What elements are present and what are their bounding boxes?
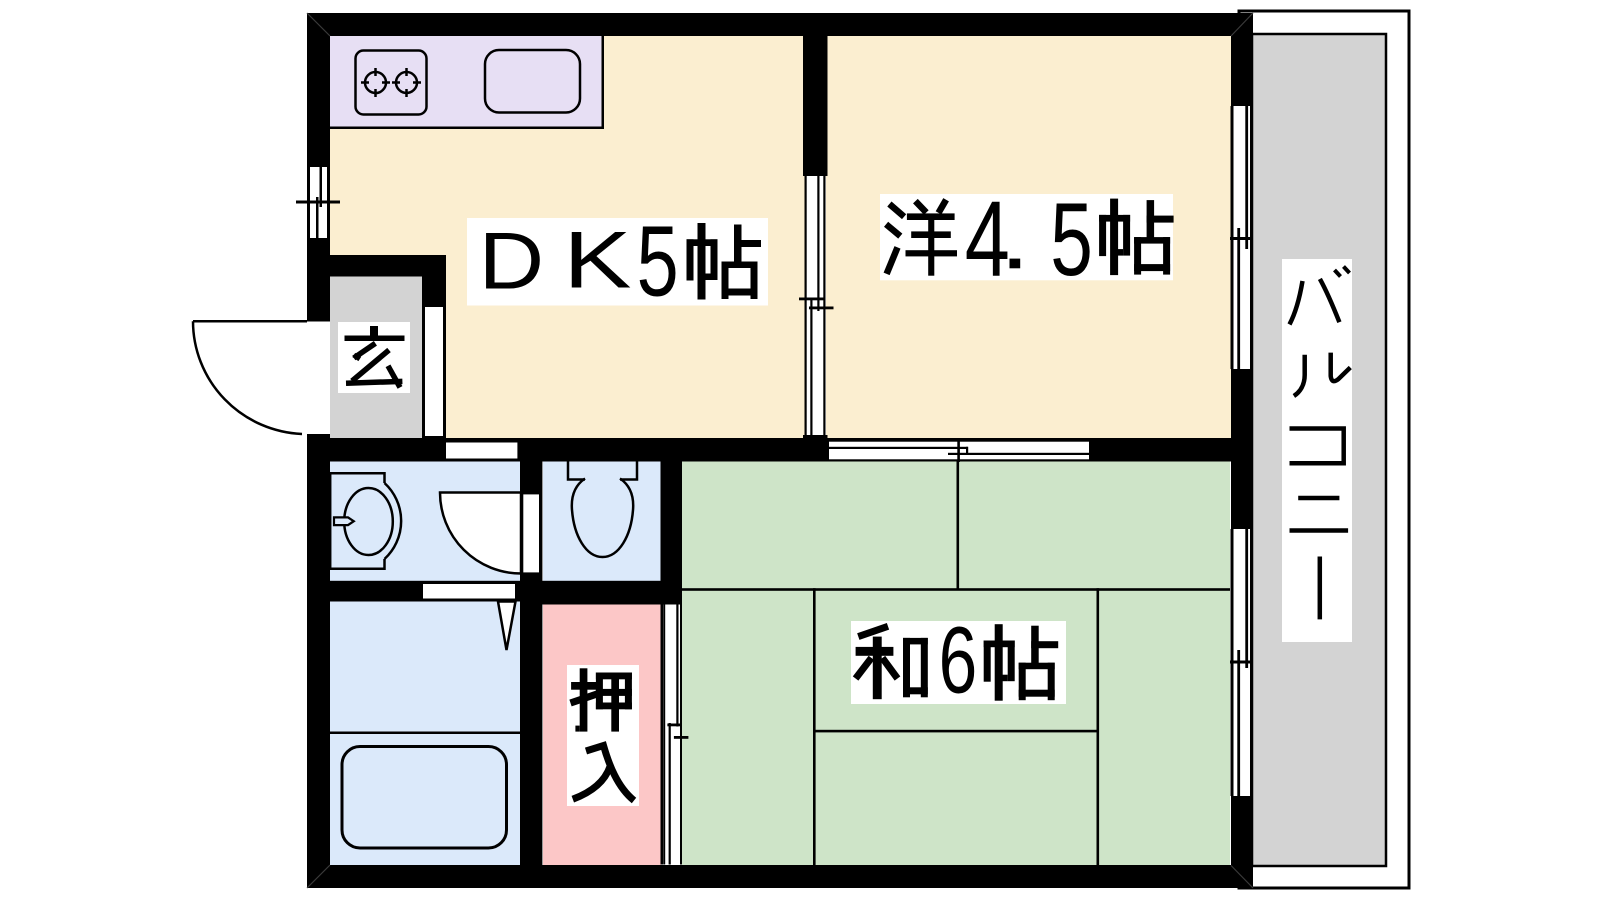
svg-text:5: 5: [1050, 181, 1093, 297]
svg-text:6: 6: [939, 607, 978, 713]
svg-text:K: K: [563, 215, 631, 306]
svg-text:4: 4: [965, 180, 1010, 300]
svg-text:D: D: [479, 216, 545, 306]
svg-text:5: 5: [637, 205, 679, 317]
